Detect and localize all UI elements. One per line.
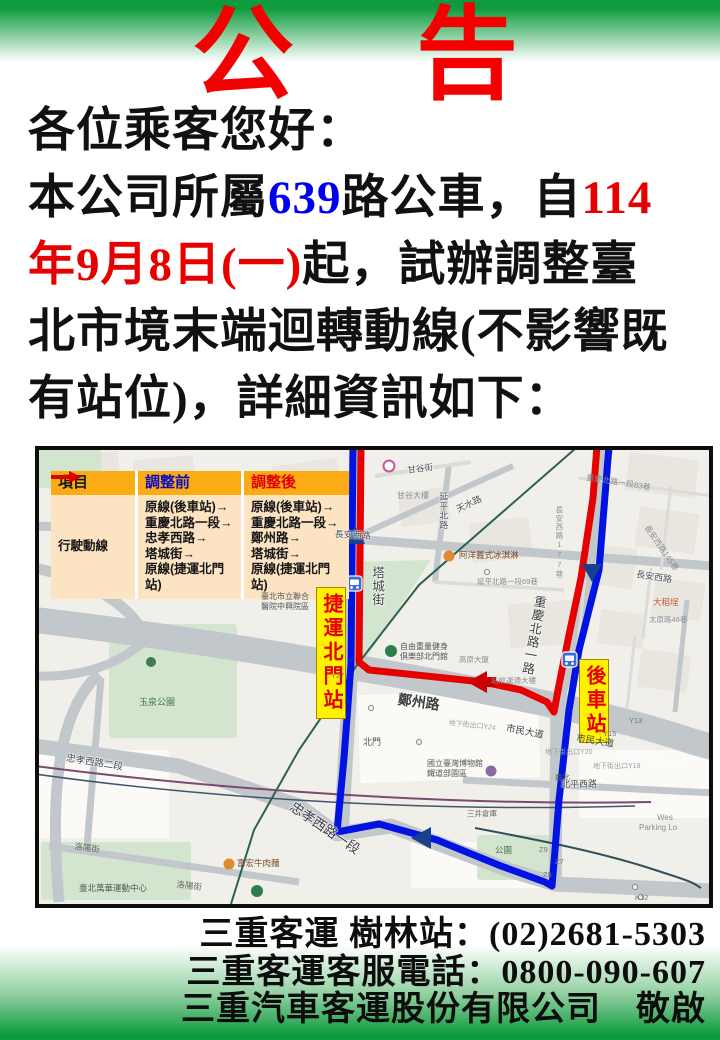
park-icon xyxy=(146,657,156,667)
announcement-line-3: 年9月8日(一)起，試辦調整臺 xyxy=(28,232,706,299)
announcement-line-4: 北市境末端迴轉動線(不影響既 xyxy=(28,299,706,366)
announcement-line-5: 有站位)，詳細資訊如下： xyxy=(28,366,706,433)
station-label-rear-station: 後車站 xyxy=(579,659,609,743)
announcement-body: 各位乘客您好： 本公司所屬639路公車，自114 年9月8日(一)起，試辦調整臺… xyxy=(28,98,706,433)
announcement-poster: 公 告 各位乘客您好： 本公司所屬639路公車，自114 年9月8日(一)起，試… xyxy=(0,0,720,1040)
contact-info: 三重客運 樹林站：(02)2681-5303 三重客運客服電話：0800-090… xyxy=(181,916,706,1029)
date-highlight: 年9月8日(一) xyxy=(28,239,302,291)
metro-icon xyxy=(384,461,395,472)
restaurant-icon xyxy=(444,551,455,562)
contact-line-service: 三重客運客服電話：0800-090-607 xyxy=(181,954,706,992)
legend-after-route: 原線(後車站)→ 重慶北路一段→ 鄭州路→ 塔城街→ 原線(捷運北門站) xyxy=(241,495,349,599)
sports-center-icon xyxy=(251,885,263,897)
poster-title: 公 告 xyxy=(0,2,720,112)
bus-stop-icon xyxy=(562,652,577,667)
announcement-line-1: 各位乘客您好： xyxy=(28,98,706,165)
station-label-north-gate: 捷運北門站 xyxy=(316,587,346,719)
route-legend-table: 項目 調整前 調整後 行駛動線 原線(後車站)→ 重慶北路一段→ 忠孝西路→ 塔… xyxy=(51,471,313,599)
legend-row-header: 行駛動線 xyxy=(51,495,135,599)
year-highlight: 114 xyxy=(582,172,653,224)
route-number-highlight: 639 xyxy=(268,172,342,224)
legend-before-route: 原線(後車站)→ 重慶北路一段→ 忠孝西路→ 塔城街→ 原線(捷運北門站) xyxy=(135,495,241,599)
red-arrow-icon xyxy=(51,471,81,483)
contact-line-company: 三重汽車客運股份有限公司 敬啟 xyxy=(181,991,706,1029)
contact-line-shulin: 三重客運 樹林站：(02)2681-5303 xyxy=(181,916,706,954)
route-map: 項目 調整前 調整後 行駛動線 原線(後車站)→ 重慶北路一段→ 忠孝西路→ 塔… xyxy=(35,446,713,908)
legend-header-after: 調整後 xyxy=(241,471,349,495)
legend-header-before: 調整前 xyxy=(135,471,241,495)
bus-stop-icon xyxy=(347,576,362,591)
gym-icon xyxy=(385,645,397,657)
museum-icon xyxy=(486,766,497,777)
announcement-line-2: 本公司所屬639路公車，自114 xyxy=(28,165,706,232)
restaurant-icon xyxy=(224,859,235,870)
